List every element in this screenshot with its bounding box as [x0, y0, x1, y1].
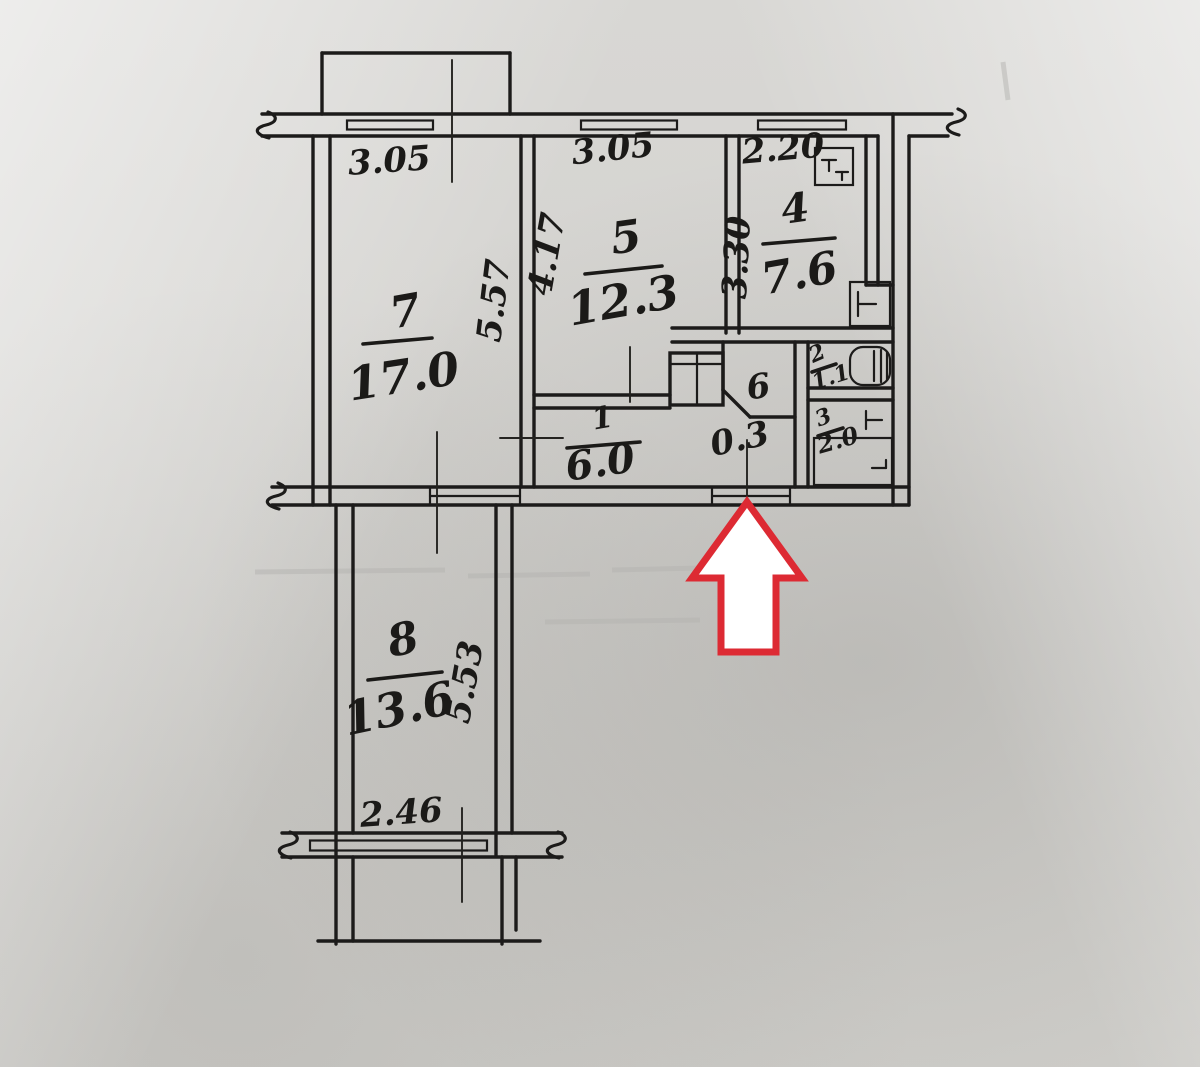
hallway-area: 6.0: [562, 434, 638, 490]
closet-number: 6: [744, 366, 773, 409]
room-5-area: 12.3: [563, 264, 683, 337]
dim-room5-width: 3.05: [570, 125, 657, 173]
wall-break-mark: [279, 832, 297, 858]
dim-room8-depth: 5.53: [438, 638, 492, 727]
dim-room8-width: 2.46: [358, 790, 444, 836]
floor-plan-photo: 7 17.0 5 12.3 4 7.6 1 6.0 6 0.3 2 1.1 3 …: [0, 0, 1200, 1067]
red-arrow-up-icon: [692, 502, 802, 652]
toilet-fixture-icon: [850, 347, 890, 385]
room-7-area: 17.0: [344, 341, 463, 412]
wall-break-mark: [257, 112, 275, 138]
room-8-number: 8: [382, 612, 424, 668]
hallway-number: 1: [589, 400, 616, 438]
dim-room7-width: 3.05: [347, 138, 432, 184]
labels: 7 17.0 5 12.3 4 7.6 1 6.0 6 0.3 2 1.1 3 …: [338, 125, 862, 836]
wall-break-mark: [547, 832, 565, 858]
room-7-number: 7: [386, 284, 425, 340]
kitchen-sink-icon: [850, 282, 890, 326]
top-balcony: [322, 53, 510, 114]
closet-area: 0.3: [707, 414, 773, 465]
room-4-number: 4: [778, 183, 812, 233]
floor-plan-drawing: 7 17.0 5 12.3 4 7.6 1 6.0 6 0.3 2 1.1 3 …: [0, 0, 1200, 1067]
room-5-number: 5: [607, 210, 644, 265]
bath-door-mark-icon: [866, 411, 882, 429]
dim-kitchen-depth: 3.30: [715, 215, 759, 300]
room-4-area: 7.6: [757, 242, 841, 306]
dim-room7-depth: 5.57: [469, 257, 519, 344]
dim-kitchen-width: 2.20: [739, 125, 826, 172]
red-arrow-annotation: [692, 502, 802, 652]
